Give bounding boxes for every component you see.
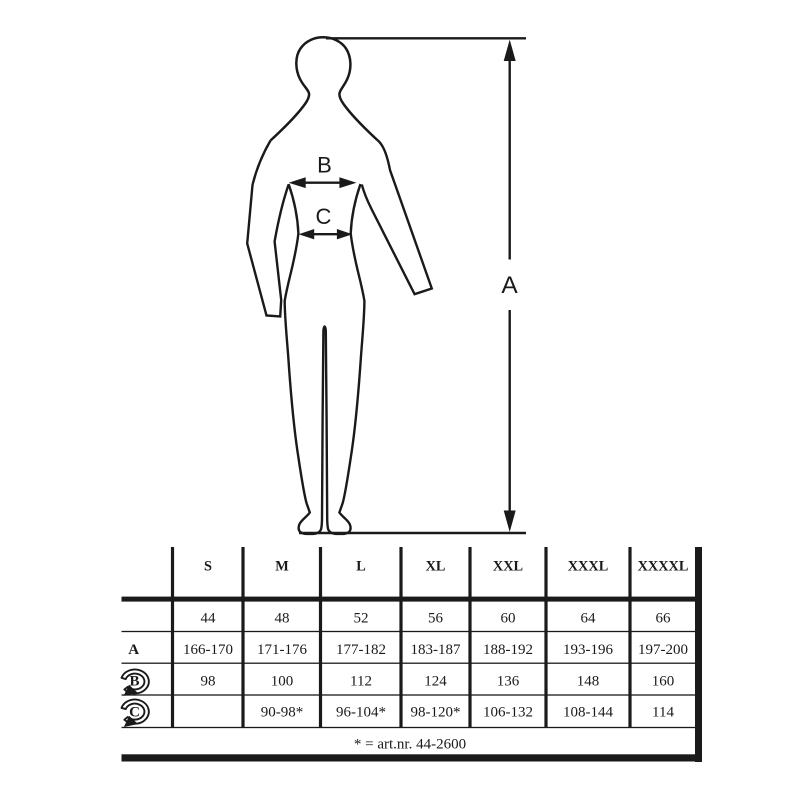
svg-text:A: A [128, 642, 139, 658]
svg-text:52: 52 [354, 610, 369, 626]
svg-text:197-200: 197-200 [638, 642, 688, 658]
svg-text:112: 112 [350, 673, 372, 689]
svg-text:B: B [317, 153, 332, 178]
svg-text:98: 98 [201, 673, 216, 689]
svg-text:106-132: 106-132 [483, 705, 533, 721]
svg-text:B: B [129, 674, 139, 690]
svg-text:* = art.nr. 44-2600: * = art.nr. 44-2600 [354, 737, 466, 753]
svg-text:114: 114 [652, 705, 674, 721]
svg-text:183-187: 183-187 [411, 642, 461, 658]
svg-text:148: 148 [577, 673, 600, 689]
svg-text:C: C [316, 204, 332, 229]
svg-text:90-98*: 90-98* [261, 705, 304, 721]
svg-text:124: 124 [424, 673, 447, 689]
svg-text:66: 66 [656, 610, 672, 626]
svg-text:98-120*: 98-120* [411, 705, 461, 721]
svg-text:188-192: 188-192 [483, 642, 533, 658]
svg-text:S: S [204, 558, 212, 574]
svg-text:171-176: 171-176 [257, 642, 307, 658]
svg-text:100: 100 [271, 673, 294, 689]
svg-text:64: 64 [581, 610, 597, 626]
svg-text:M: M [275, 558, 289, 574]
svg-text:XL: XL [426, 558, 446, 574]
svg-text:48: 48 [275, 610, 290, 626]
svg-text:60: 60 [501, 610, 516, 626]
svg-text:166-170: 166-170 [183, 642, 233, 658]
svg-text:44: 44 [201, 610, 217, 626]
svg-text:L: L [356, 558, 366, 574]
svg-text:193-196: 193-196 [563, 642, 613, 658]
svg-text:177-182: 177-182 [336, 642, 386, 658]
svg-text:96-104*: 96-104* [336, 705, 386, 721]
svg-text:136: 136 [497, 673, 520, 689]
svg-text:XXL: XXL [493, 558, 523, 574]
svg-text:XXXXL: XXXXL [638, 558, 689, 574]
svg-text:C: C [129, 705, 140, 721]
svg-text:56: 56 [428, 610, 444, 626]
svg-text:160: 160 [652, 673, 675, 689]
svg-text:XXXL: XXXL [568, 558, 609, 574]
svg-text:108-144: 108-144 [563, 705, 613, 721]
svg-text:A: A [501, 272, 518, 299]
